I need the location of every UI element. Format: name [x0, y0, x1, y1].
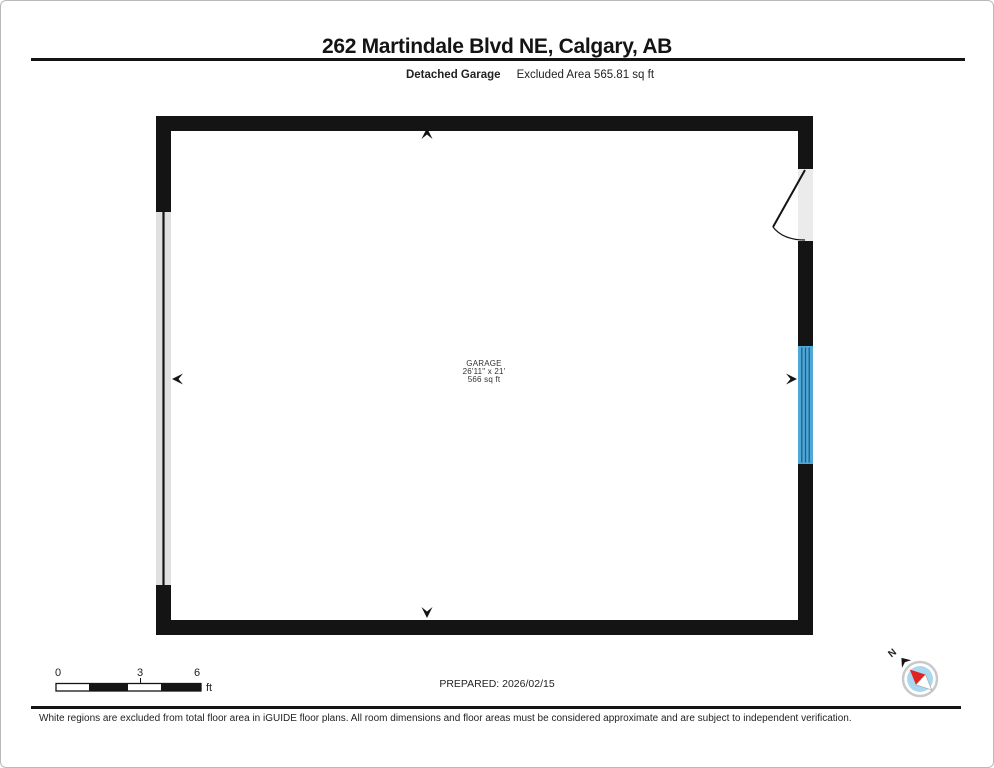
wall-top [156, 116, 813, 131]
entry-door [773, 169, 813, 241]
footer-disclaimer: White regions are excluded from total fl… [39, 713, 959, 724]
wall-right-upper [798, 116, 813, 169]
wall-right-middle [798, 241, 813, 346]
measure-arrow-down-icon [422, 607, 433, 618]
prepared-date: PREPARED: 2026/02/15 [1, 678, 993, 690]
footer-divider [31, 706, 961, 709]
floorplan-drawing [1, 1, 993, 767]
garage-door-panel-line [162, 212, 164, 585]
wall-left-lower [156, 585, 171, 635]
room-area: 566 sq ft [1, 376, 967, 384]
wall-bottom [156, 620, 813, 635]
garage-door [156, 212, 171, 585]
wall-left-upper [156, 116, 171, 212]
room-label: GARAGE 26'11" x 21' 566 sq ft [1, 360, 993, 384]
wall-right-lower [798, 464, 813, 635]
floorplan-page: 262 Martindale Blvd NE, Calgary, AB Deta… [0, 0, 994, 768]
